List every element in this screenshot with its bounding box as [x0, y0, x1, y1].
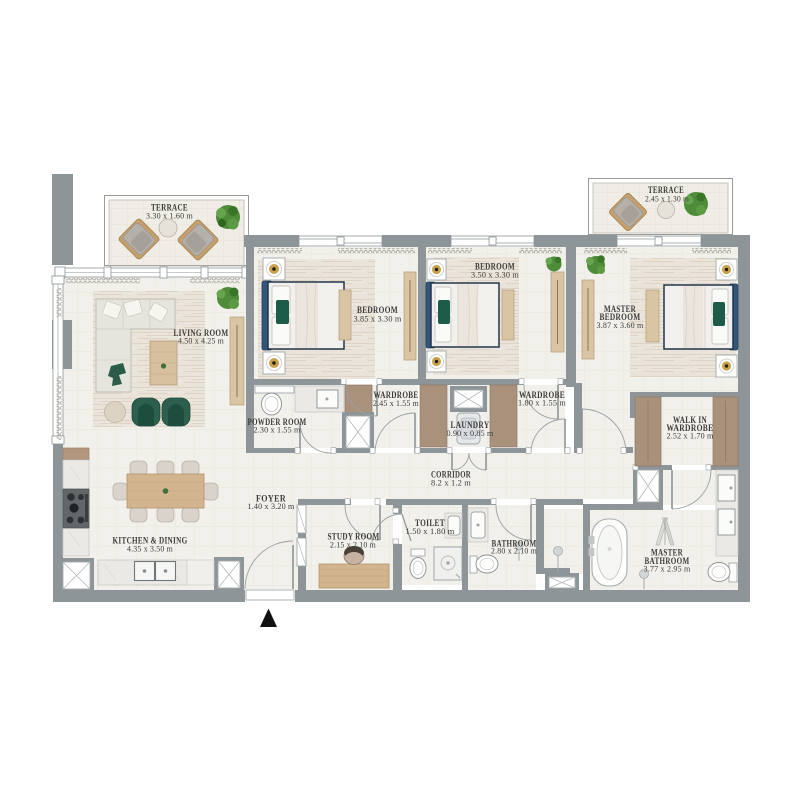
- svg-text:3.30 x 1.60 m: 3.30 x 1.60 m: [146, 212, 193, 221]
- svg-text:3.50 x 3.30 m: 3.50 x 3.30 m: [471, 271, 519, 280]
- svg-text:1.80 x 1.55 m: 1.80 x 1.55 m: [518, 399, 566, 408]
- svg-text:8.2 x 1.2 m: 8.2 x 1.2 m: [431, 479, 471, 488]
- svg-text:1.50 x 1.80 m: 1.50 x 1.80 m: [406, 527, 455, 536]
- svg-text:4.50 x 4.25 m: 4.50 x 4.25 m: [178, 337, 224, 346]
- svg-text:3.87 x 3.60 m: 3.87 x 3.60 m: [597, 321, 644, 330]
- svg-text:3.85 x 3.30 m: 3.85 x 3.30 m: [354, 315, 402, 324]
- svg-text:4.35 x 3.50 m: 4.35 x 3.50 m: [127, 545, 173, 554]
- svg-text:2.45 x 1.55 m: 2.45 x 1.55 m: [373, 399, 419, 408]
- svg-text:3.77 x 2.95 m: 3.77 x 2.95 m: [644, 565, 691, 574]
- svg-text:2.30 x 1.55 m: 2.30 x 1.55 m: [254, 426, 301, 435]
- svg-text:2.52 x 1.70 m: 2.52 x 1.70 m: [667, 432, 714, 441]
- svg-text:0.90 x 0.85 m: 0.90 x 0.85 m: [447, 429, 494, 438]
- svg-text:1.40 x 3.20 m: 1.40 x 3.20 m: [248, 502, 295, 511]
- svg-text:2.80 x 2.10 m: 2.80 x 2.10 m: [491, 547, 537, 556]
- svg-text:2.45 x 1.30 m: 2.45 x 1.30 m: [645, 195, 689, 204]
- svg-text:2.15 x 2.10 m: 2.15 x 2.10 m: [330, 541, 376, 550]
